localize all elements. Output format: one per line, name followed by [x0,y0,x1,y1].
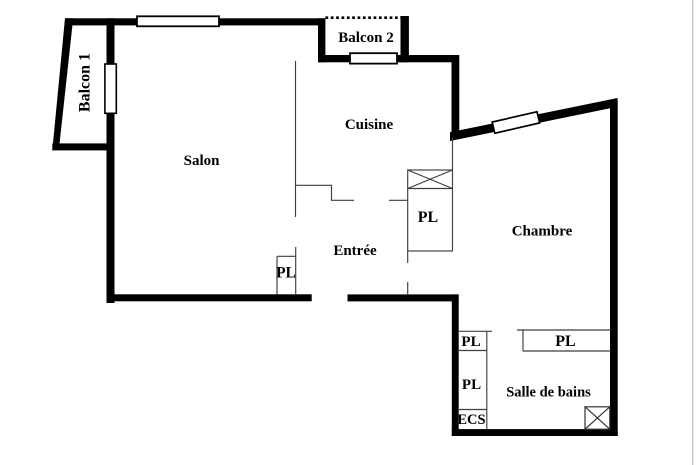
svg-text:Salon: Salon [184,153,221,169]
svg-text:Salle de bains: Salle de bains [506,385,591,401]
svg-text:Balcon 2: Balcon 2 [338,30,393,46]
svg-text:PL: PL [461,334,480,350]
svg-text:PL: PL [462,377,481,393]
svg-text:ECS: ECS [457,412,485,428]
svg-text:Entrée: Entrée [333,243,377,259]
svg-text:PL: PL [555,333,575,350]
svg-text:Chambre: Chambre [512,224,573,240]
svg-text:PL: PL [276,265,296,282]
svg-text:Cuisine: Cuisine [345,117,394,133]
svg-text:PL: PL [418,209,438,226]
svg-text:Balcon 1: Balcon 1 [77,53,94,112]
